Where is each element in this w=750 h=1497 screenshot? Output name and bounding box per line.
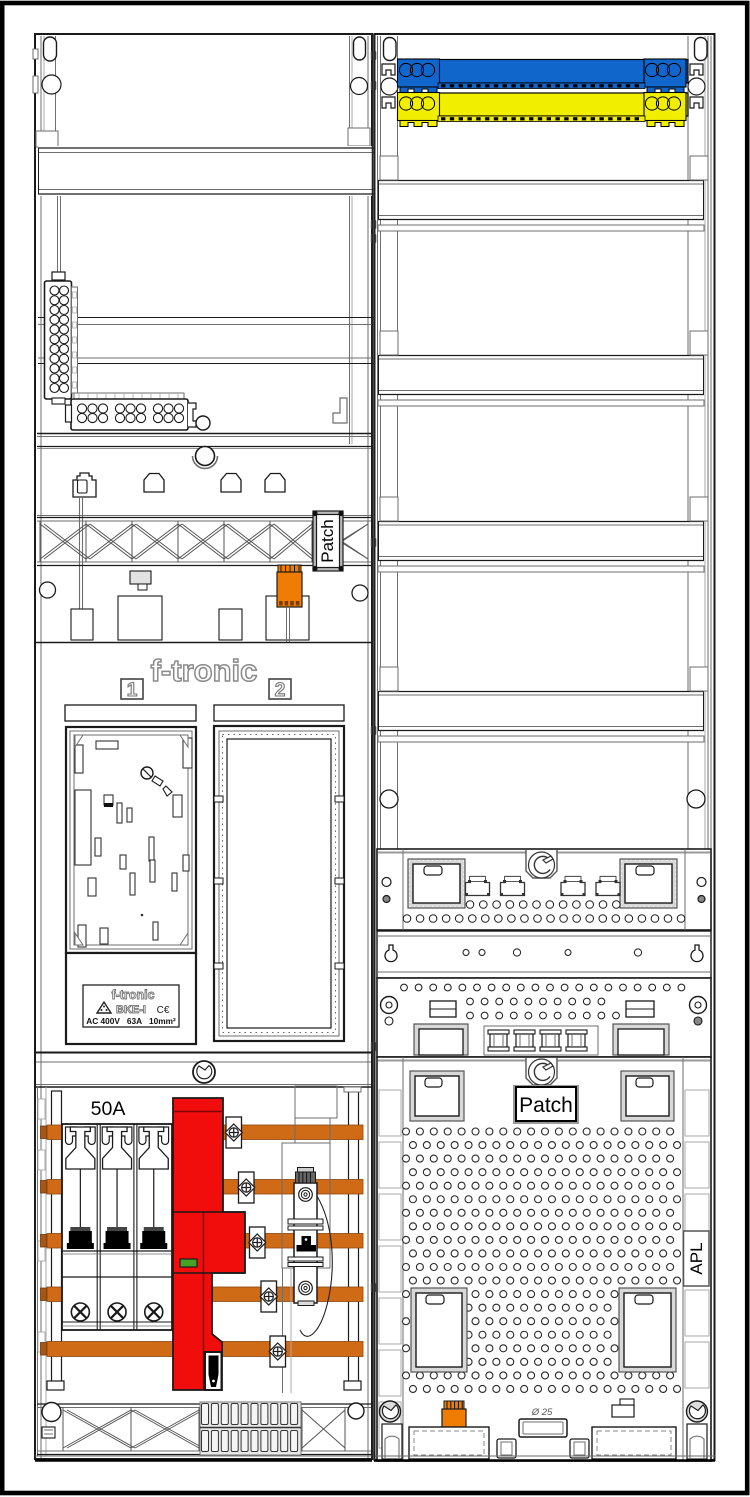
svg-text:BKE-I: BKE-I bbox=[116, 1004, 146, 1016]
svg-text:AC 400V 63A 10mm²: AC 400V 63A 10mm² bbox=[86, 1016, 176, 1026]
svg-text:Patch: Patch bbox=[519, 1094, 573, 1117]
svg-text:1: 1 bbox=[127, 680, 138, 701]
svg-text:f-tronic: f-tronic bbox=[111, 988, 154, 1002]
svg-text:C€: C€ bbox=[157, 1005, 170, 1016]
svg-text:APL: APL bbox=[687, 1242, 706, 1274]
svg-text:50A: 50A bbox=[91, 1098, 126, 1120]
svg-text:2: 2 bbox=[275, 680, 286, 701]
svg-text:Ø 25: Ø 25 bbox=[531, 1407, 553, 1418]
svg-text:Patch: Patch bbox=[318, 519, 337, 562]
svg-text:f-tronic: f-tronic bbox=[151, 653, 258, 688]
